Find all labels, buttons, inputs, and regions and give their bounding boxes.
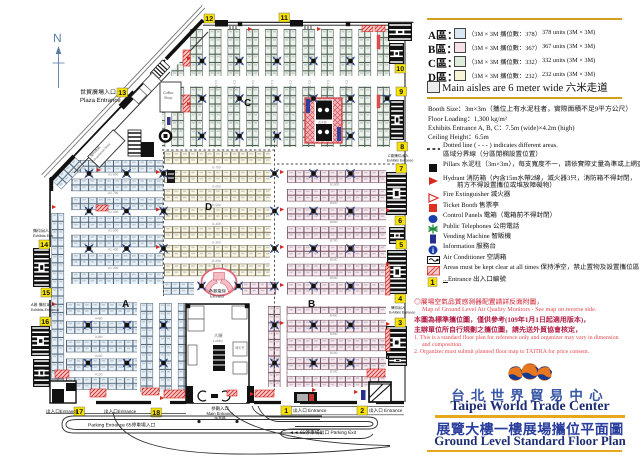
svg-text:哺乳室: 哺乳室 [235, 346, 245, 350]
svg-text:A: A [122, 299, 129, 310]
svg-text:B: B [308, 299, 315, 310]
svg-text:出入口 Entrance: 出入口 Entrance [293, 408, 327, 413]
svg-text:Exhibits Entrance: Exhibits Entrance [31, 308, 59, 312]
svg-text:Exhibits Entrance: Exhibits Entrance [389, 311, 415, 315]
svg-text:D-300: D-300 [212, 241, 221, 245]
svg-text:洗手間: 洗手間 [318, 121, 327, 125]
svg-text:A200: A200 [95, 354, 103, 358]
svg-text:D-500: D-500 [212, 203, 221, 207]
svg-text:攜位出入: 攜位出入 [33, 228, 49, 233]
svg-text:C1-200: C1-200 [326, 80, 330, 91]
svg-text:A1-300: A1-300 [108, 266, 119, 270]
svg-text:5: 5 [399, 242, 403, 249]
svg-text:B900: B900 [330, 201, 338, 205]
svg-text:8: 8 [400, 144, 404, 151]
svg-text:Elevator: Elevator [210, 294, 225, 299]
svg-text:B300: B300 [330, 332, 338, 336]
svg-text:Coffee: Coffee [163, 91, 174, 95]
svg-text:A300: A300 [95, 335, 103, 339]
svg-text:9: 9 [399, 89, 403, 96]
svg-text:14: 14 [40, 242, 48, 249]
svg-text:Shop: Shop [164, 96, 172, 100]
svg-text:13: 13 [118, 90, 126, 97]
svg-text:A1-700: A1-700 [108, 191, 119, 195]
svg-text:A1-500: A1-500 [108, 229, 119, 233]
svg-text:A1-800: A1-800 [108, 173, 119, 177]
svg-text:4: 4 [398, 296, 402, 303]
svg-text:6: 6 [398, 218, 402, 225]
svg-text:A100: A100 [95, 373, 103, 377]
svg-text:C: C [244, 98, 251, 109]
svg-text:12: 12 [205, 16, 213, 23]
svg-text:10: 10 [396, 66, 404, 73]
svg-text:D-200: D-200 [212, 259, 221, 263]
svg-text:世貿廣場入口: 世貿廣場入口 [80, 88, 116, 96]
svg-text:C1-600: C1-600 [251, 80, 255, 91]
svg-text:Exhibits Entr.: Exhibits Entr. [33, 234, 54, 238]
svg-text:D: D [205, 202, 212, 213]
svg-text:攜位出入: 攜位出入 [391, 305, 406, 310]
svg-text:16: 16 [41, 319, 49, 326]
svg-text:3: 3 [398, 320, 402, 327]
svg-text:N: N [53, 31, 62, 45]
svg-text:B800: B800 [330, 220, 338, 224]
svg-text:C1-800: C1-800 [214, 80, 218, 91]
svg-text:C區攜位出入: C區攜位出入 [388, 153, 409, 158]
svg-text:Lobby: Lobby [213, 339, 223, 343]
svg-text:15: 15 [42, 290, 50, 297]
svg-text:2: 2 [360, 408, 364, 415]
svg-text:A400: A400 [95, 317, 103, 321]
svg-text:大廳: 大廳 [214, 333, 223, 338]
svg-text:A1-600: A1-600 [108, 210, 119, 214]
svg-text:B400: B400 [330, 314, 338, 318]
svg-text:7: 7 [399, 166, 403, 173]
svg-text:B700: B700 [330, 239, 338, 243]
svg-text:Plaza Entrance: Plaza Entrance [80, 97, 121, 104]
svg-text:D-700: D-700 [212, 166, 221, 170]
svg-text:出入口Entrance: 出入口Entrance [46, 409, 79, 414]
svg-text:B100: B100 [330, 370, 338, 374]
svg-text:C1-500: C1-500 [270, 80, 274, 91]
svg-text:A1-400: A1-400 [108, 247, 119, 251]
svg-text:B200: B200 [330, 351, 338, 355]
svg-text:B1000: B1000 [330, 183, 339, 187]
svg-text:◄◄ 65停車場出口 Parking Exit: ◄◄ 65停車場出口 Parking Exit [289, 429, 357, 436]
svg-text:D-400: D-400 [212, 222, 221, 226]
svg-text:C1-100: C1-100 [345, 80, 349, 91]
svg-text:Parking Entrance 65停車場入口: Parking Entrance 65停車場入口 [88, 422, 156, 429]
svg-text:A區 攜位出入: A區 攜位出入 [31, 302, 55, 307]
svg-text:1: 1 [284, 408, 288, 415]
svg-text:1: 1 [430, 278, 435, 287]
svg-text:D-600: D-600 [212, 184, 221, 188]
svg-text:出入口Entrance: 出入口Entrance [104, 409, 137, 414]
svg-text:C1-700: C1-700 [233, 80, 237, 91]
svg-text:Exhibits Entrance: Exhibits Entrance [387, 159, 413, 163]
svg-text:B600: B600 [330, 257, 338, 261]
svg-text:C1-300: C1-300 [307, 80, 311, 91]
svg-text:B500: B500 [330, 276, 338, 280]
svg-text:C1-400: C1-400 [289, 80, 293, 91]
svg-text:出入口 Entrance: 出入口 Entrance [369, 408, 403, 413]
svg-text:11: 11 [280, 15, 288, 22]
